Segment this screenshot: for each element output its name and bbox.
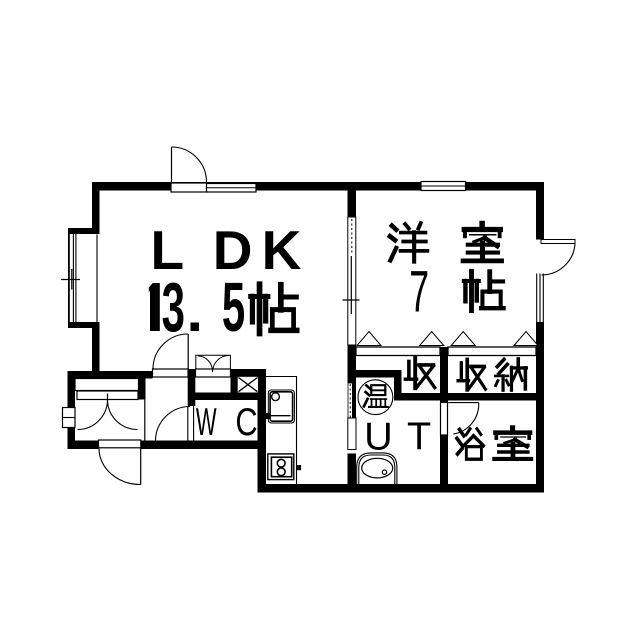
svg-text:U: U bbox=[364, 416, 393, 458]
svg-text:K: K bbox=[262, 219, 302, 281]
svg-text:5: 5 bbox=[222, 269, 245, 347]
svg-text:W: W bbox=[196, 401, 217, 444]
svg-text:7: 7 bbox=[409, 260, 429, 325]
svg-text:3: 3 bbox=[162, 269, 185, 347]
svg-text:C: C bbox=[235, 401, 257, 444]
svg-text:T: T bbox=[407, 416, 431, 458]
